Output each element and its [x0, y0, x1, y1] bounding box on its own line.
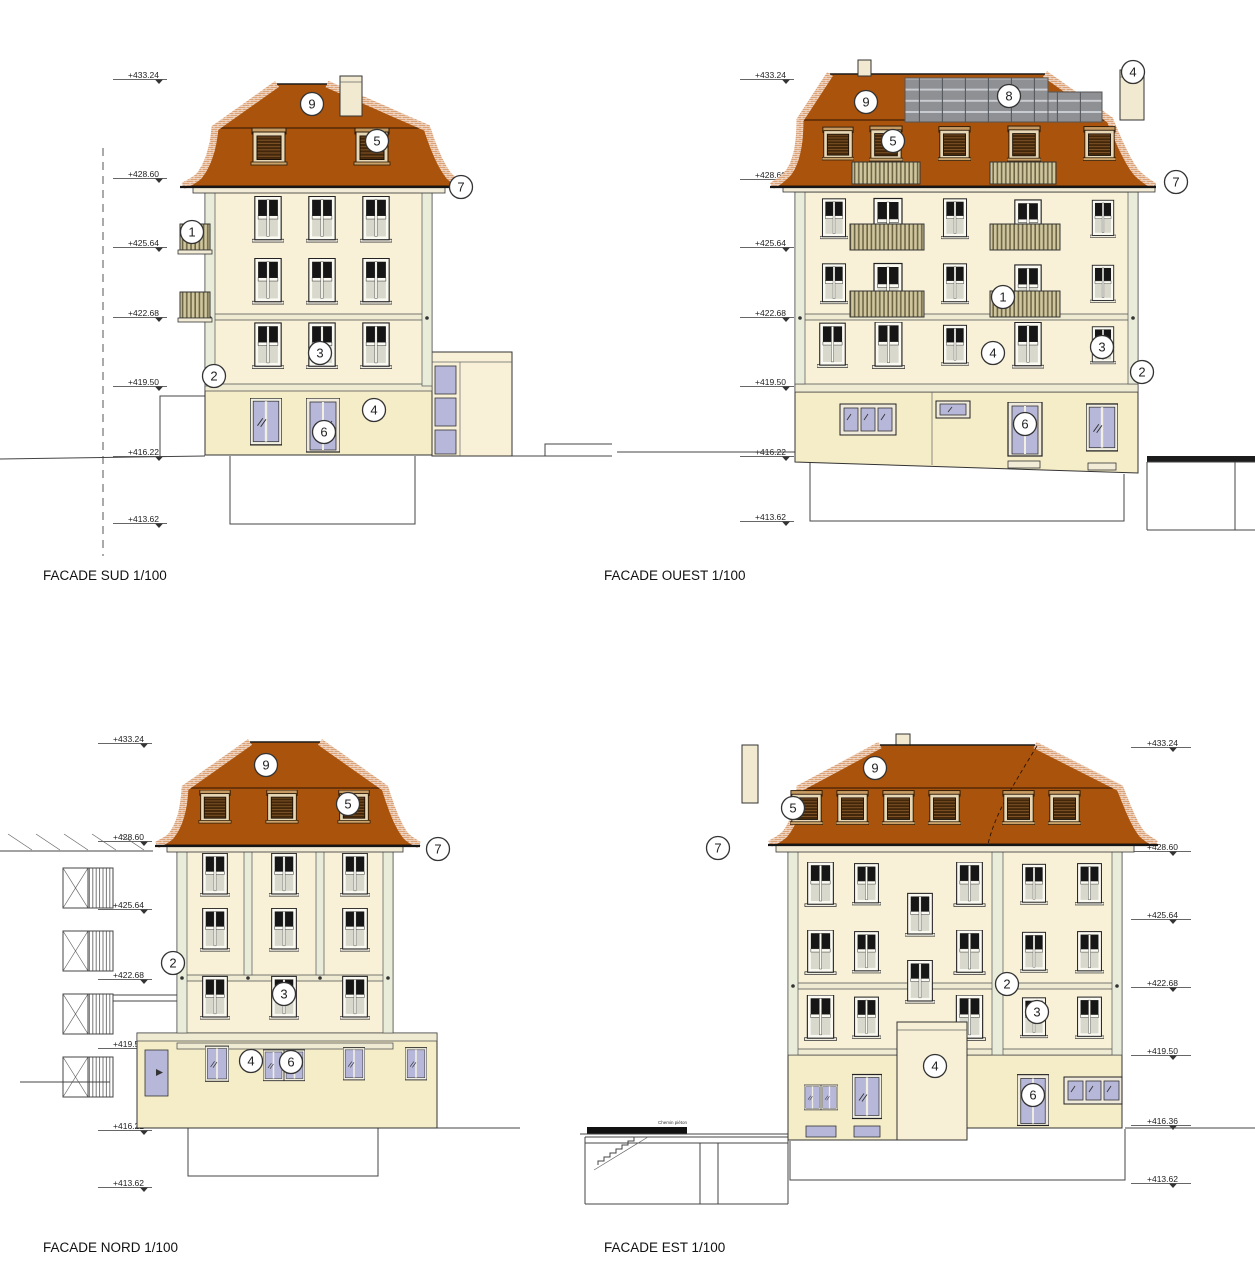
- pilaster: [316, 850, 324, 975]
- low-wall: [545, 444, 612, 456]
- canopy-edge: [1147, 456, 1255, 462]
- ground-window: [821, 1085, 838, 1110]
- ground-window: [852, 1075, 882, 1119]
- callout-3: 3: [273, 983, 296, 1006]
- svg-text:+433.24: +433.24: [1147, 738, 1178, 748]
- elevation-marker: +433.24: [1131, 738, 1191, 752]
- svg-text:5: 5: [344, 797, 351, 812]
- callout-7: 7: [427, 838, 450, 861]
- svg-text:+425.64: +425.64: [1147, 910, 1178, 920]
- svg-text:+433.24: +433.24: [755, 70, 786, 80]
- window: [820, 199, 848, 239]
- svg-text:6: 6: [287, 1055, 294, 1070]
- neighbor-balcony: [63, 994, 113, 1034]
- stairwell-window: [435, 366, 456, 394]
- basement-outline: [230, 456, 415, 524]
- svg-text:+416.22: +416.22: [128, 447, 159, 457]
- ground-window: [804, 1085, 821, 1110]
- window: [306, 196, 338, 242]
- callout-7: 7: [450, 176, 473, 199]
- dormer: [1007, 126, 1041, 161]
- window: [954, 862, 985, 907]
- facade-nord-title: FACADE NORD 1/100: [43, 1240, 178, 1255]
- window: [941, 199, 969, 239]
- chimney: [742, 745, 758, 803]
- site-structure-right: [1147, 456, 1255, 530]
- stair-window: [905, 960, 935, 1003]
- site-label: Chemin piéton: [658, 1120, 688, 1125]
- ground-window: [1086, 404, 1118, 451]
- elevation-drawing-canvas: +433.24 +428.60 +425.64 +422.68 +419.50 …: [0, 0, 1255, 1275]
- dormer: [251, 128, 287, 165]
- ground-window: [250, 398, 282, 445]
- corner-pilaster: [383, 850, 393, 1033]
- window: [200, 853, 230, 896]
- balcony: [990, 224, 1060, 250]
- svg-text:9: 9: [862, 95, 869, 110]
- elevation-marker: +422.68: [113, 308, 167, 322]
- facade-ouest-title: FACADE OUEST 1/100: [604, 568, 746, 583]
- svg-text:+422.68: +422.68: [1147, 978, 1178, 988]
- corner-pilaster: [795, 192, 805, 384]
- callout-6: 6: [1022, 1084, 1045, 1107]
- dormer: [266, 790, 298, 823]
- callout-2: 2: [1131, 361, 1154, 384]
- window: [340, 908, 370, 951]
- dormer: [1002, 791, 1035, 825]
- ground-window: [343, 1048, 365, 1080]
- neighbor-balcony: [63, 931, 113, 971]
- balcony: [850, 291, 924, 317]
- window: [269, 853, 299, 896]
- corner-pilaster: [1112, 850, 1122, 1055]
- svg-text:+425.64: +425.64: [755, 238, 786, 248]
- callout-1: 1: [181, 221, 204, 244]
- string-course: [795, 384, 1138, 392]
- svg-text:2: 2: [1138, 365, 1145, 380]
- svg-text:5: 5: [373, 134, 380, 149]
- svg-text:6: 6: [320, 425, 327, 440]
- window: [340, 976, 370, 1019]
- elevation-marker: +416.22: [740, 447, 794, 461]
- window: [872, 322, 905, 369]
- elevation-marker: +425.64: [740, 238, 794, 252]
- window: [805, 930, 836, 975]
- window: [360, 258, 392, 304]
- corner-pilaster: [177, 850, 187, 1033]
- window: [852, 997, 881, 1038]
- svg-text:3: 3: [280, 987, 287, 1002]
- callout-4: 4: [982, 342, 1005, 365]
- svg-text:+425.64: +425.64: [128, 238, 159, 248]
- solar-panel-array: [905, 78, 1048, 122]
- site-walkway-est: Chemin piéton: [580, 1120, 788, 1204]
- callout-9: 9: [255, 754, 278, 777]
- window: [1090, 200, 1116, 237]
- svg-text:7: 7: [1172, 175, 1179, 190]
- svg-text:+425.64: +425.64: [113, 900, 144, 910]
- elevation-marker: +413.62: [113, 514, 167, 528]
- stairs: [598, 1137, 640, 1165]
- window: [941, 325, 969, 365]
- callout-4: 4: [363, 399, 386, 422]
- dormer: [1083, 127, 1116, 161]
- svg-text:+413.62: +413.62: [113, 1178, 144, 1188]
- svg-text:7: 7: [714, 841, 721, 856]
- window: [200, 976, 230, 1019]
- svg-text:+433.24: +433.24: [128, 70, 159, 80]
- neighbor-balcony: [63, 868, 113, 908]
- callout-5: 5: [337, 793, 360, 816]
- callout-3: 3: [1091, 336, 1114, 359]
- svg-text:+413.62: +413.62: [1147, 1174, 1178, 1184]
- callout-6: 6: [1014, 413, 1037, 436]
- facade-est: +433.24 +428.60 +425.64 +422.68 +419.50 …: [580, 734, 1255, 1255]
- svg-text:1: 1: [999, 290, 1006, 305]
- dormer: [882, 791, 915, 825]
- roof-stack: [858, 60, 871, 76]
- corner-pilaster: [422, 192, 432, 386]
- svg-text:4: 4: [370, 403, 377, 418]
- svg-text:9: 9: [308, 97, 315, 112]
- svg-text:7: 7: [457, 180, 464, 195]
- string-course: [788, 983, 1122, 989]
- neighbor-balcony: [63, 1057, 113, 1097]
- walkway: [113, 995, 177, 1001]
- stair-window: [905, 893, 935, 936]
- callout-2: 2: [203, 365, 226, 388]
- callout-2: 2: [996, 973, 1019, 996]
- svg-text:9: 9: [871, 761, 878, 776]
- balcony: [850, 224, 924, 250]
- window: [360, 196, 392, 242]
- window: [1012, 322, 1044, 368]
- dormer: [1048, 791, 1081, 825]
- window: [941, 264, 969, 304]
- callout-3: 3: [1026, 1001, 1049, 1024]
- callout-4: 4: [240, 1050, 263, 1073]
- center-pilaster: [992, 850, 1003, 1055]
- stair-stringer: [594, 1137, 648, 1170]
- elevation-marker: +419.50: [113, 377, 167, 391]
- stairwell-window: [435, 430, 456, 454]
- svg-text:3: 3: [1098, 340, 1105, 355]
- elevation-markers-est: +433.24 +428.60 +425.64 +422.68 +419.50 …: [1131, 738, 1191, 1188]
- window: [1075, 932, 1104, 973]
- elevation-marker: +419.50: [1131, 1046, 1191, 1060]
- callout-2: 2: [162, 952, 185, 975]
- svg-text:+419.50: +419.50: [755, 377, 786, 387]
- facade-est-title: FACADE EST 1/100: [604, 1240, 725, 1255]
- elevation-marker: +413.62: [1131, 1174, 1191, 1188]
- elevation-marker: +433.24: [113, 70, 167, 84]
- window: [820, 264, 848, 304]
- window: [852, 932, 881, 973]
- dormer: [199, 790, 231, 823]
- elevation-marker: +413.62: [98, 1178, 152, 1192]
- callout-6: 6: [313, 421, 336, 444]
- basement-window: [806, 1126, 836, 1137]
- elevation-marker: +428.60: [98, 832, 152, 846]
- callout-4: 4: [924, 1055, 947, 1078]
- window: [954, 930, 985, 975]
- stairwell-window: [435, 398, 456, 426]
- stair-tower: [897, 1022, 967, 1140]
- facade-nord: +433.24 +428.60 +425.64 +422.68 +419.50 …: [0, 734, 520, 1255]
- window: [805, 862, 836, 907]
- window: [200, 908, 230, 951]
- window: [1075, 864, 1104, 905]
- facade-sud: +433.24 +428.60 +425.64 +422.68 +419.50 …: [0, 70, 612, 583]
- svg-text:2: 2: [210, 369, 217, 384]
- svg-text:7: 7: [434, 842, 441, 857]
- window: [1020, 864, 1048, 904]
- elevation-marker: +422.68: [1131, 978, 1191, 992]
- dormer: [938, 127, 971, 161]
- elevation-markers-ouest: +433.24 +428.60 +425.64 +422.68 +419.50 …: [740, 70, 794, 526]
- facade-ouest: +433.24 +428.60 +425.64 +422.68 +419.50 …: [604, 60, 1255, 583]
- elevation-marker: +422.68: [98, 970, 152, 984]
- svg-text:2: 2: [1003, 977, 1010, 992]
- facade-sud-title: FACADE SUD 1/100: [43, 568, 167, 583]
- svg-text:3: 3: [1033, 1005, 1040, 1020]
- elevation-marker: +425.64: [113, 238, 167, 252]
- string-course: [795, 314, 1138, 320]
- basement-outline: [188, 1128, 378, 1176]
- window: [805, 995, 837, 1041]
- callout-5: 5: [882, 130, 905, 153]
- callout-5: 5: [782, 797, 805, 820]
- roof-mansard: [770, 788, 1156, 844]
- parapet-band: [137, 1033, 437, 1041]
- callout-6: 6: [280, 1051, 303, 1074]
- svg-text:5: 5: [789, 801, 796, 816]
- window: [1075, 997, 1104, 1038]
- dormer-balcony: [852, 162, 920, 184]
- window: [1020, 932, 1048, 972]
- retaining-wall: [160, 396, 205, 457]
- callout-7: 7: [707, 837, 730, 860]
- elevation-marker: +428.60: [113, 169, 167, 183]
- svg-text:4: 4: [247, 1054, 254, 1069]
- corner-pilaster: [1128, 192, 1138, 384]
- svg-text:6: 6: [1029, 1088, 1036, 1103]
- window: [1090, 265, 1116, 302]
- callout-5: 5: [366, 130, 389, 153]
- window: [340, 853, 370, 896]
- callout-9: 9: [864, 757, 887, 780]
- svg-text:4: 4: [1129, 65, 1136, 80]
- callout-9: 9: [301, 93, 324, 116]
- svg-text:9: 9: [262, 758, 269, 773]
- callout-9: 9: [855, 91, 878, 114]
- svg-text:6: 6: [1021, 417, 1028, 432]
- ground-window: [205, 1046, 229, 1081]
- dormer-balcony: [990, 162, 1056, 184]
- svg-text:4: 4: [931, 1059, 938, 1074]
- architectural-elevation-sheet: +433.24 +428.60 +425.64 +422.68 +419.50 …: [0, 0, 1255, 1275]
- svg-text:+422.68: +422.68: [128, 308, 159, 318]
- svg-text:8: 8: [1005, 89, 1012, 104]
- dormer: [822, 127, 854, 160]
- elevation-marker: +422.68: [740, 308, 794, 322]
- svg-text:+413.62: +413.62: [755, 512, 786, 522]
- callout-3: 3: [309, 342, 332, 365]
- window: [852, 864, 881, 905]
- svg-text:+428.60: +428.60: [128, 169, 159, 179]
- svg-text:+416.36: +416.36: [1147, 1116, 1178, 1126]
- corner-pilaster: [205, 192, 215, 386]
- corner-pilaster: [788, 850, 798, 1055]
- elevation-marker: +416.22: [113, 447, 167, 461]
- window: [252, 323, 284, 369]
- svg-text:5: 5: [889, 134, 896, 149]
- svg-text:1: 1: [188, 225, 195, 240]
- walkway-edge: [587, 1127, 687, 1134]
- svg-text:2: 2: [169, 956, 176, 971]
- ground-window: [405, 1048, 427, 1080]
- callout-8: 8: [998, 85, 1021, 108]
- elevation-marker: +413.62: [740, 512, 794, 526]
- elevation-markers-sud: +433.24 +428.60 +425.64 +422.68 +419.50 …: [113, 70, 167, 528]
- callout-4: 4: [1122, 61, 1145, 84]
- svg-text:+428.60: +428.60: [113, 832, 144, 842]
- svg-text:+419.50: +419.50: [128, 377, 159, 387]
- svg-text:+419.50: +419.50: [1147, 1046, 1178, 1056]
- window: [252, 196, 284, 242]
- dormer: [928, 791, 961, 825]
- callout-1: 1: [992, 286, 1015, 309]
- basement-outline: [810, 463, 1124, 521]
- solar-panel-array: [1048, 92, 1102, 122]
- dormer: [836, 791, 869, 825]
- svg-text:+413.62: +413.62: [128, 514, 159, 524]
- balcony: [178, 292, 212, 322]
- window: [269, 908, 299, 951]
- window: [306, 258, 338, 304]
- svg-text:+433.24: +433.24: [113, 734, 144, 744]
- window: [360, 323, 392, 369]
- svg-text:+422.68: +422.68: [755, 308, 786, 318]
- elevation-marker: +433.24: [740, 70, 794, 84]
- string-course: [205, 384, 432, 391]
- basement-window: [854, 1126, 880, 1137]
- pilaster: [244, 850, 252, 975]
- svg-text:4: 4: [989, 346, 996, 361]
- roof-mansard: [183, 128, 465, 186]
- string-course: [205, 314, 432, 320]
- window: [817, 323, 848, 367]
- window: [252, 258, 284, 304]
- callout-7: 7: [1165, 171, 1188, 194]
- elevation-marker: +425.64: [1131, 910, 1191, 924]
- svg-text:+422.68: +422.68: [113, 970, 144, 980]
- svg-text:3: 3: [316, 346, 323, 361]
- elevation-marker: +433.24: [98, 734, 152, 748]
- elevation-marker: +419.50: [740, 377, 794, 391]
